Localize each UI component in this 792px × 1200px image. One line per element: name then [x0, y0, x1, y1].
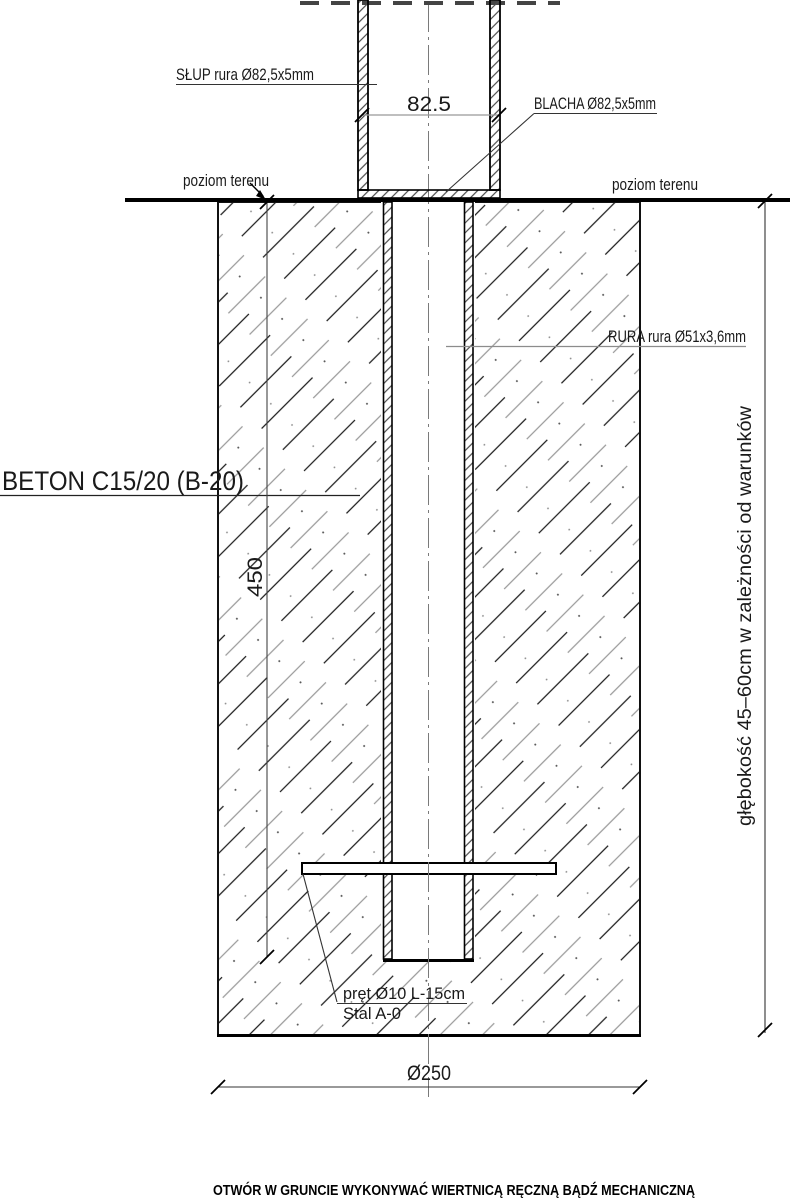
post-width-dimension: 82.5 — [407, 93, 451, 116]
slup-label: SŁUP rura Ø82,5x5mm — [176, 66, 314, 84]
pret-label-line1: pręt Ø10 L-15cm — [343, 985, 465, 1003]
depth-range-dimension-group: głębokość 45–60cm w zależności od warunk… — [735, 194, 772, 1037]
drilling-note: OTWÓR W GRUNCIE WYKONYWAĆ WIERTNICĄ RĘCZ… — [213, 1181, 695, 1199]
post-wall-right — [490, 0, 500, 190]
embed-depth-dimension: 450 — [244, 557, 267, 597]
pipe-wall-left — [384, 202, 393, 959]
post-wall-left — [358, 0, 368, 190]
drawing-page: 82.5 SŁUP rura Ø82,5x5mm BLACHA Ø82,5x5m… — [0, 0, 792, 1200]
post-width-dimension-group: 82.5 — [355, 93, 506, 122]
blacha-label: BLACHA Ø82,5x5mm — [534, 95, 656, 113]
ground-level-left-group: poziom terenu — [183, 172, 269, 200]
hole-diameter-dimension: Ø250 — [407, 1062, 451, 1085]
foundation-section-drawing: 82.5 SŁUP rura Ø82,5x5mm BLACHA Ø82,5x5m… — [0, 0, 792, 1200]
base-plate — [358, 190, 500, 198]
ground-level-label-right: poziom terenu — [612, 176, 698, 194]
pipe-wall-right — [465, 202, 474, 959]
beton-label: BETON C15/20 (B-20) — [2, 466, 244, 496]
ground-level-label-left: poziom terenu — [183, 172, 269, 190]
depth-range-label: głębokość 45–60cm w zależności od warunk… — [735, 406, 756, 826]
pret-label-line2: Stal A-0 — [343, 1005, 401, 1023]
rura-label: RURA rura Ø51x3,6mm — [608, 328, 746, 346]
slup-label-group: SŁUP rura Ø82,5x5mm — [176, 66, 377, 85]
